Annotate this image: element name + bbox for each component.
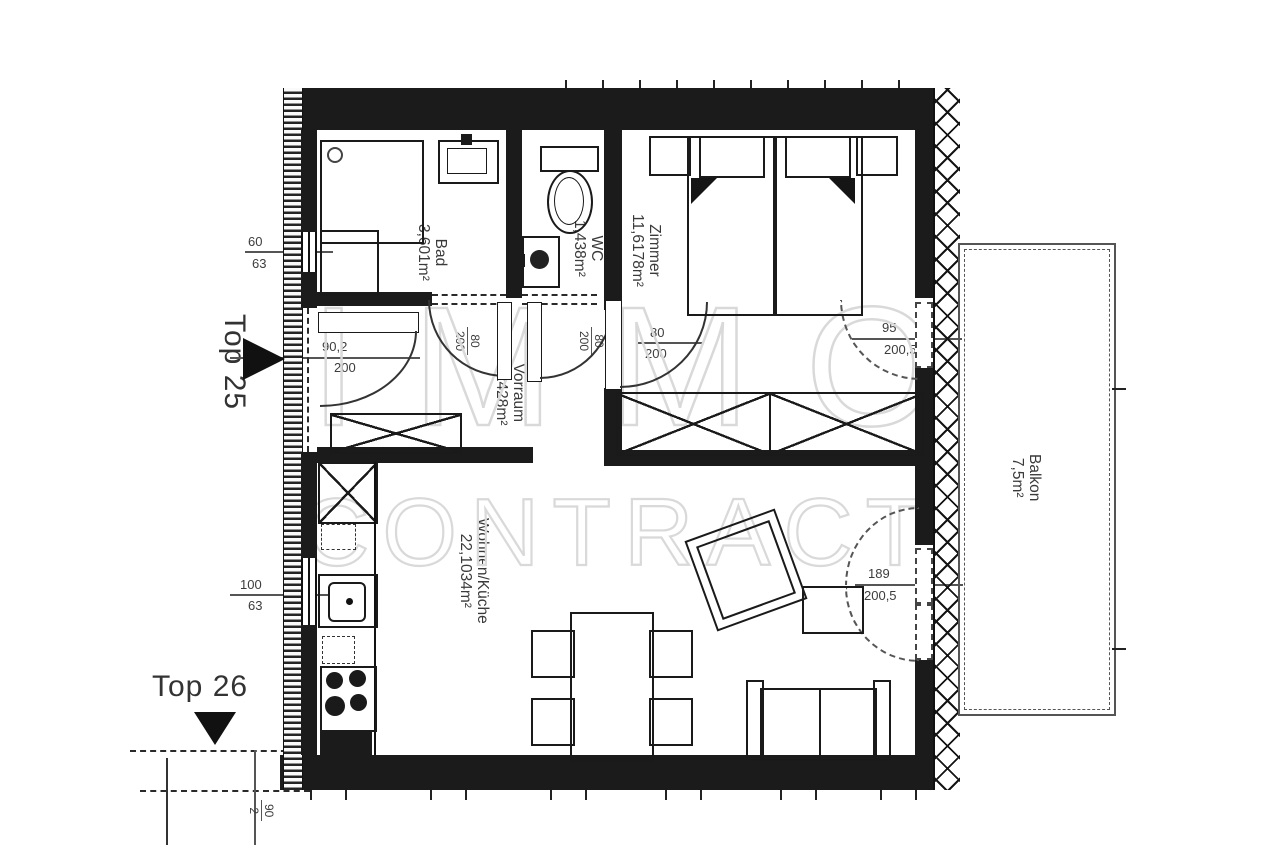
- sofa-seat-divider: [819, 690, 821, 759]
- entrance-arrow-top26: [194, 712, 236, 745]
- chair: [531, 698, 575, 746]
- tick: [565, 80, 567, 88]
- kitchen-window: [301, 558, 317, 625]
- bad-washbasin-tap: [461, 134, 472, 145]
- shower-drain: [327, 147, 343, 163]
- kitchen-appliance-dashed: [322, 636, 355, 664]
- tick: [861, 80, 863, 88]
- balcony-outline: [958, 243, 1116, 716]
- kitchen-appliance-dashed: [321, 524, 356, 550]
- bad-door-opening-dashed: [432, 294, 506, 296]
- wall-left-seg4: [301, 625, 317, 755]
- washing-machine: [320, 230, 379, 296]
- coffee-table: [802, 586, 864, 634]
- bad-washbasin: [438, 140, 499, 184]
- shower: [320, 140, 424, 244]
- wall-wc-zimmer-upper: [604, 130, 622, 310]
- tick: [780, 790, 782, 800]
- bad-door-leaf: [497, 302, 512, 380]
- watermark-line2: CONTRACT: [300, 479, 937, 586]
- entrance-door-leaf: [318, 312, 419, 333]
- stove: [320, 666, 377, 732]
- tick: [665, 790, 667, 800]
- tick: [713, 80, 715, 88]
- dining-table: [570, 612, 654, 762]
- tick: [602, 80, 604, 88]
- sofa-seat: [760, 688, 877, 761]
- wc-door-opening-dashed: [522, 294, 597, 296]
- wall-bad-wc-divider: [506, 130, 522, 298]
- burner: [326, 672, 343, 689]
- tick: [787, 80, 789, 88]
- tick: [750, 80, 752, 88]
- bed-left-headboard: [699, 136, 765, 178]
- bed-right-headboard: [785, 136, 851, 178]
- burner: [349, 670, 366, 687]
- bed-right-blanket-fold: [829, 178, 855, 204]
- chair: [649, 630, 693, 678]
- tick: [676, 80, 678, 88]
- wc-basin-drain: [530, 250, 549, 269]
- tilted-table-inner: [696, 520, 796, 620]
- wc-corner-basin: [522, 236, 560, 288]
- bed-left-blanket-fold: [691, 178, 717, 204]
- tick: [430, 790, 432, 800]
- oven: [320, 730, 372, 755]
- bad-window: [301, 232, 317, 272]
- chair: [649, 698, 693, 746]
- entrance-arrow-top25: [243, 338, 285, 380]
- tick: [898, 80, 900, 88]
- tick: [585, 790, 587, 800]
- toilet-tank: [540, 146, 599, 172]
- tick: [880, 790, 882, 800]
- wall-right-seg1: [915, 130, 933, 298]
- tick: [915, 790, 917, 800]
- tick: [310, 790, 312, 800]
- hall-wardrobe: [330, 413, 462, 454]
- wall-left-seg2: [301, 272, 317, 308]
- wall-right-seg3: [915, 658, 933, 755]
- floor-plan: IMMO CONTRACT: [0, 0, 1280, 845]
- tick: [824, 80, 826, 88]
- wall-top: [296, 88, 935, 130]
- tick: [1112, 388, 1126, 390]
- tick: [465, 790, 467, 800]
- tick: [639, 80, 641, 88]
- wc-basin-tap: [516, 254, 525, 267]
- zimmer-wardrobe: [616, 392, 924, 456]
- tick: [815, 790, 817, 800]
- wardrobe-cell: [618, 394, 771, 454]
- bad-washbasin-bowl: [447, 148, 487, 174]
- kitchen-sink-unit: [318, 574, 378, 628]
- balcony-inner-dashed: [964, 249, 1110, 710]
- wall-left-seg1: [301, 130, 317, 232]
- wardrobe-cell: [771, 394, 922, 454]
- wall-left-seg3: [301, 452, 317, 558]
- burner: [350, 694, 367, 711]
- entrance-opening-dashed: [307, 308, 309, 452]
- tick: [550, 790, 552, 800]
- unit-label-top26: Top 26: [152, 670, 248, 704]
- toilet-bowl-inner: [554, 177, 584, 225]
- nightstand-left: [649, 136, 691, 176]
- toilet-bowl: [547, 170, 593, 234]
- wall-right-balcony-hatch: [933, 88, 960, 790]
- kitchen-sink-drain: [346, 598, 353, 605]
- tick: [700, 790, 702, 800]
- burner: [325, 696, 345, 716]
- tick: [345, 790, 347, 800]
- chair: [531, 630, 575, 678]
- wall-left-insulation-hatch: [283, 88, 303, 790]
- fridge: [318, 462, 378, 524]
- tick: [1112, 648, 1126, 650]
